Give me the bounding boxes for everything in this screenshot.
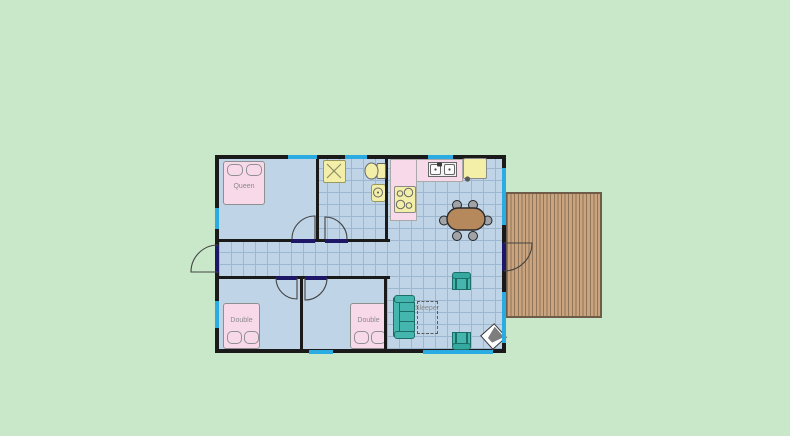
fridge-handle (465, 176, 470, 181)
dining-set (440, 201, 493, 241)
double-bed-right-label: Double (350, 317, 387, 325)
shower-drain (333, 170, 335, 172)
sink-drain (377, 192, 379, 194)
deck-door-arc (504, 243, 532, 271)
front-door-arc (191, 245, 218, 272)
dining-chair (453, 232, 462, 241)
floor-plan-canvas: Queen Double Double Sleeper (0, 0, 790, 436)
bathroom-door-arc (325, 217, 347, 239)
toilet-bowl (365, 163, 378, 179)
faucet (437, 163, 442, 167)
line-art-overlay (0, 0, 790, 436)
bed1-door-arc (276, 278, 297, 299)
bed2-door-arc (305, 278, 327, 300)
stove-burner (404, 188, 412, 196)
toilet (365, 163, 386, 179)
bathroom-sink-detail (374, 188, 383, 197)
shower-detail (327, 164, 341, 178)
dining-chair (469, 232, 478, 241)
door-arcs (191, 216, 532, 300)
sleeper-label: Sleeper (405, 305, 449, 313)
dining-table (447, 208, 485, 230)
queen-door-arc (292, 216, 315, 239)
basin-drain (448, 168, 450, 170)
basin-drain (434, 168, 436, 170)
stove-burner (397, 191, 403, 197)
stove-burner (406, 203, 412, 209)
double-bed-left-label: Double (223, 317, 260, 325)
queen-bed-label: Queen (223, 183, 265, 191)
stove-burner (396, 200, 404, 208)
